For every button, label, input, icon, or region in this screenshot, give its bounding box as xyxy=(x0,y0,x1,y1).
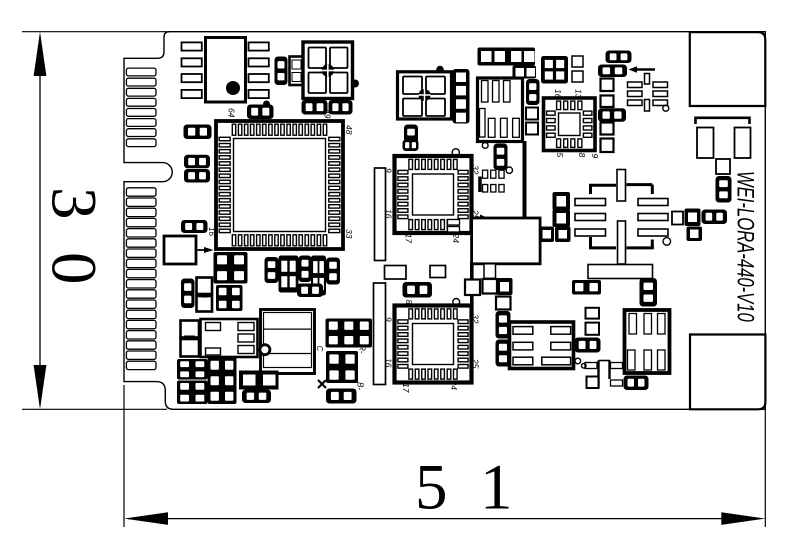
svg-text:32: 32 xyxy=(471,165,481,175)
svg-text:9: 9 xyxy=(384,168,394,173)
svg-text:WEI-LORA-440-V10: WEI-LORA-440-V10 xyxy=(732,171,759,322)
svg-text:33: 33 xyxy=(344,229,354,239)
svg-text:32: 32 xyxy=(471,314,481,324)
svg-text:48: 48 xyxy=(344,125,354,135)
svg-text:5 1: 5 1 xyxy=(415,452,513,524)
svg-text:49: 49 xyxy=(323,109,333,119)
svg-text:9: 9 xyxy=(384,317,394,322)
svg-text:B-: B- xyxy=(356,382,365,390)
svg-text:16: 16 xyxy=(207,227,216,236)
svg-text:3 0: 3 0 xyxy=(38,187,110,285)
svg-text:25: 25 xyxy=(471,358,481,369)
svg-text:16: 16 xyxy=(384,358,394,368)
svg-text:17: 17 xyxy=(401,383,411,393)
svg-text:R-: R- xyxy=(358,345,367,354)
svg-text:9: 9 xyxy=(590,154,600,159)
svg-text:16: 16 xyxy=(553,89,563,99)
svg-text:13: 13 xyxy=(574,89,584,99)
svg-text:16: 16 xyxy=(384,209,394,219)
svg-text:24: 24 xyxy=(451,233,461,244)
svg-text:64: 64 xyxy=(227,108,237,118)
svg-text:C: C xyxy=(315,346,324,352)
svg-text:17: 17 xyxy=(404,234,414,244)
svg-text:24: 24 xyxy=(449,380,459,391)
svg-text:8: 8 xyxy=(577,153,587,158)
svg-text:5: 5 xyxy=(555,153,565,158)
